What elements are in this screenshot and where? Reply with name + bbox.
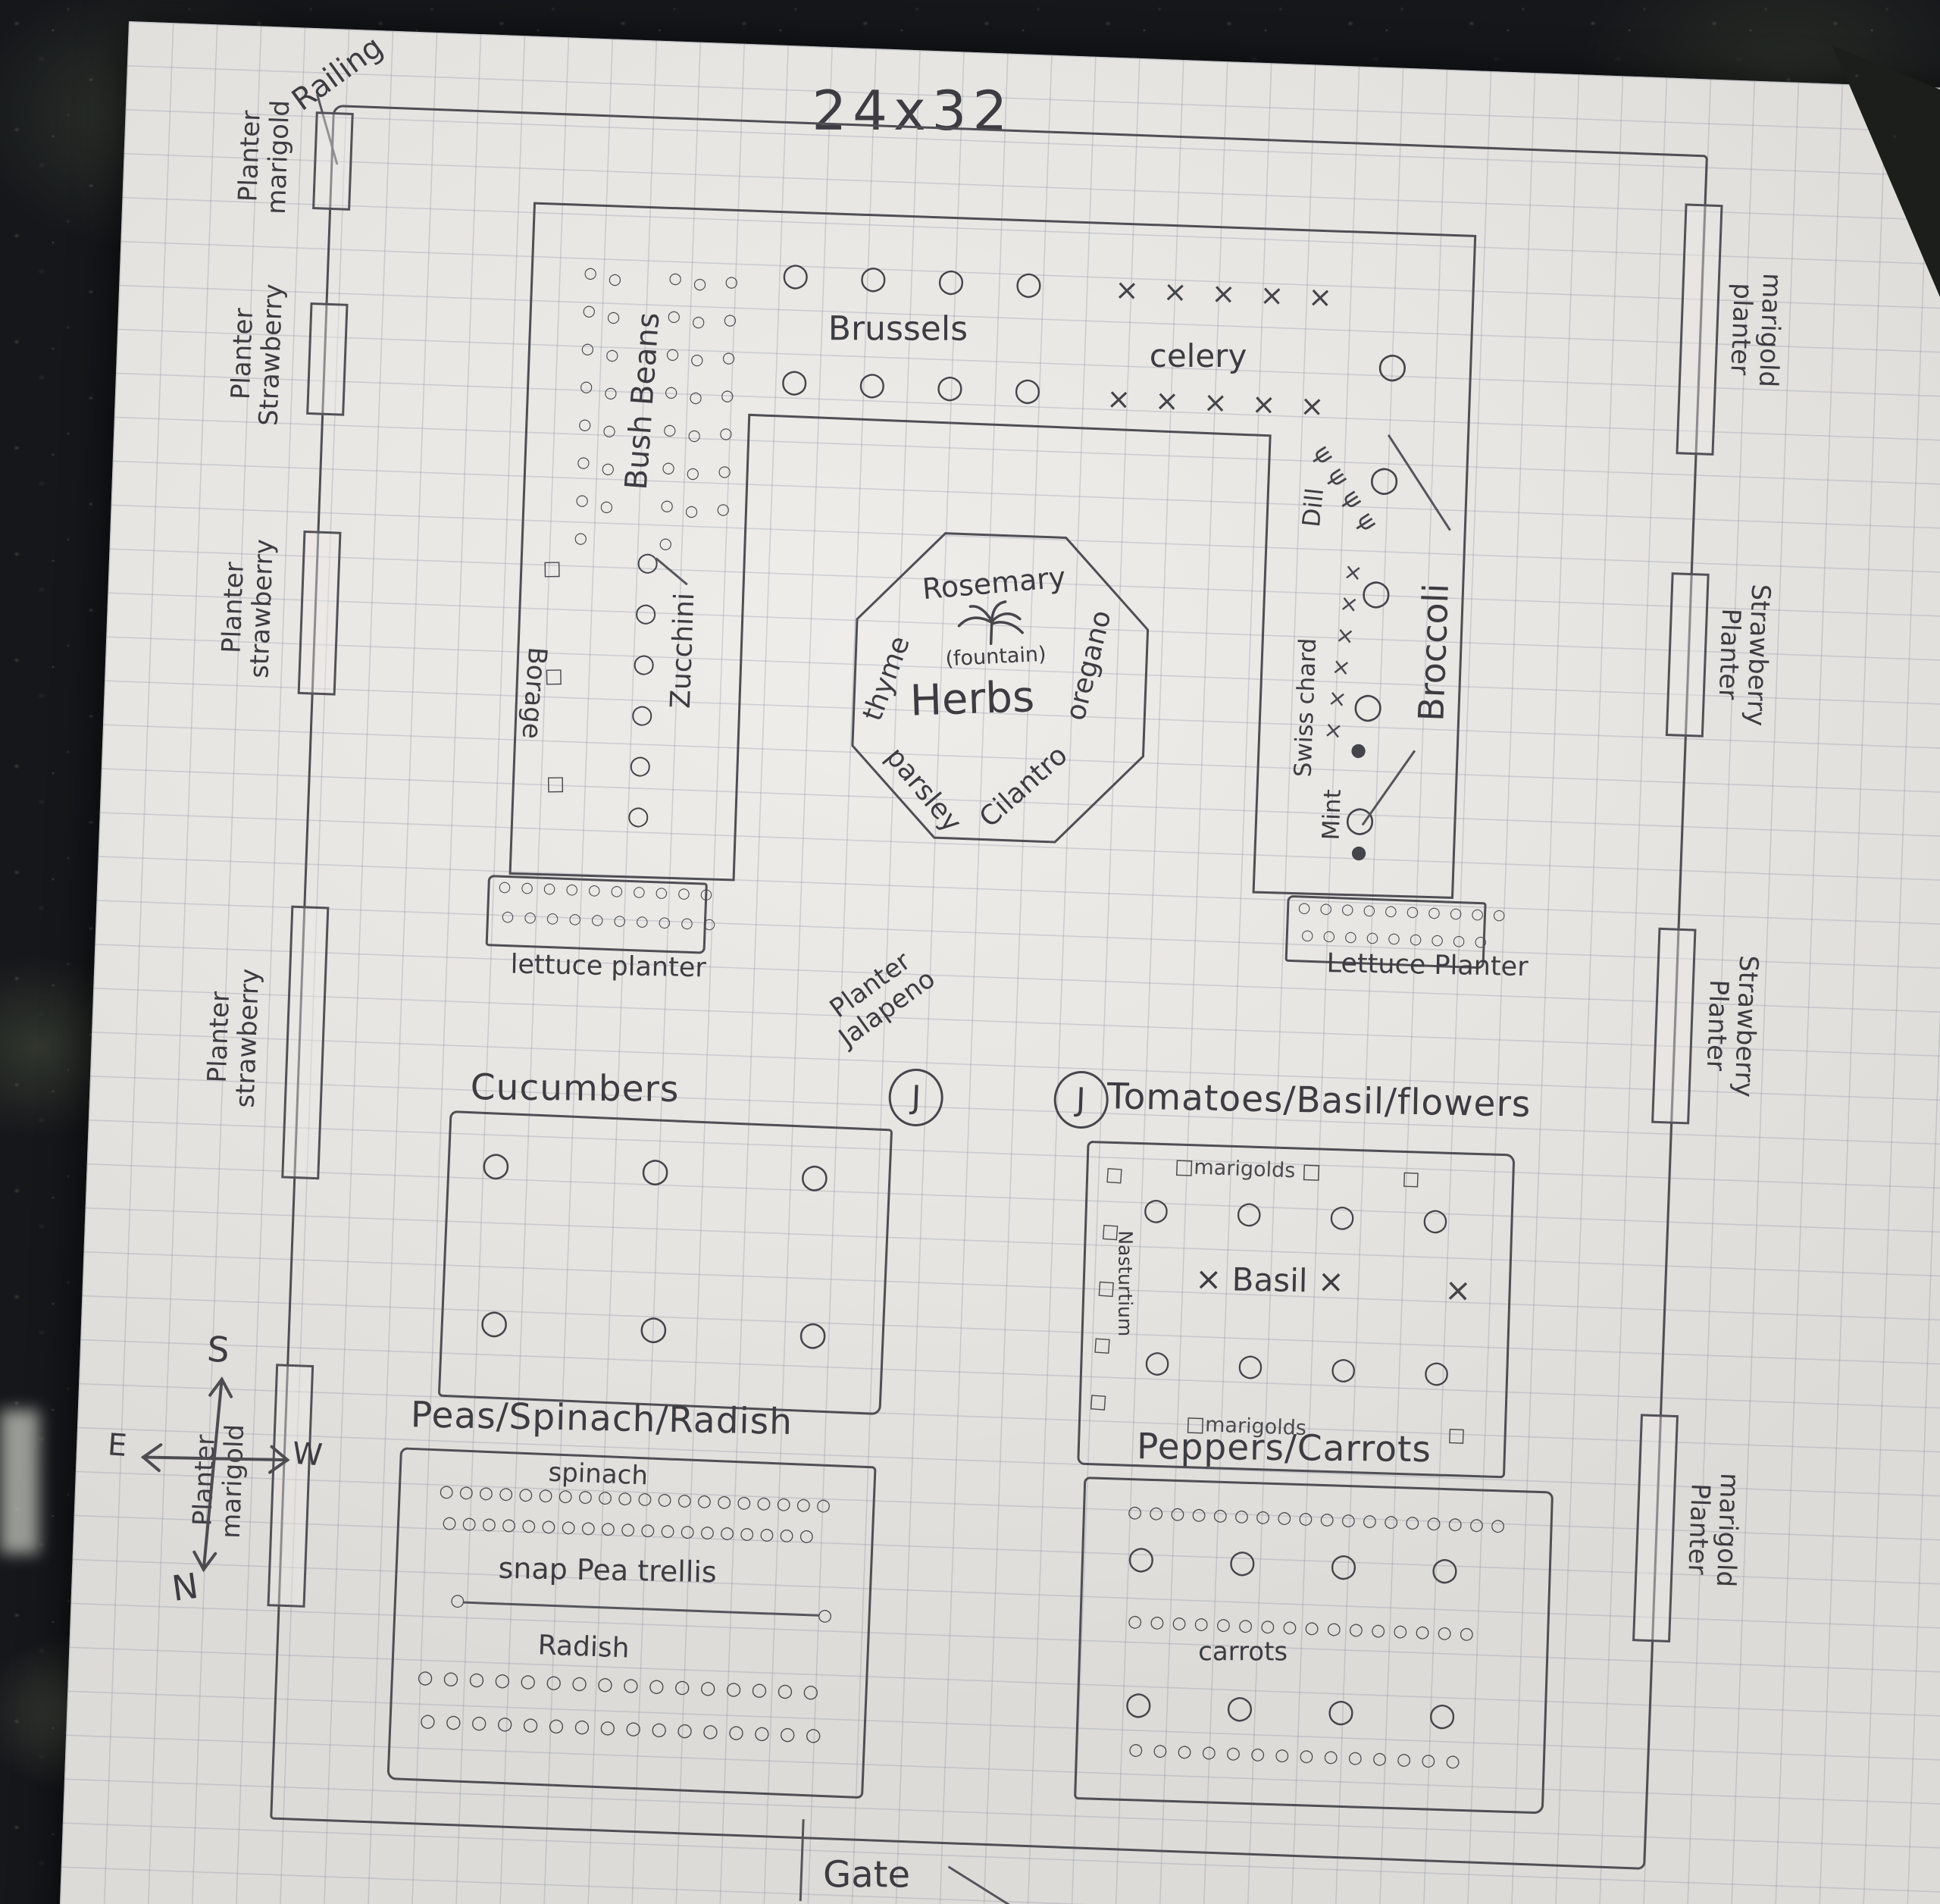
- swiss-chard-label: Swiss chard: [1289, 637, 1322, 778]
- garden-plot: ○○○○○○○○ ○○○○○○○ Bush Beans ○○○○○○○○ ○○○…: [270, 105, 1708, 1869]
- peppers-bed-label: Peppers/Carrots: [1137, 1426, 1432, 1471]
- strawberry-planter-box: [1666, 572, 1710, 737]
- countertop-photo: Railing 24x32 ○○○○○○○○ ○○○○○○○ Bush Bean…: [0, 0, 1940, 1904]
- strawberry-planter-box: [1651, 928, 1696, 1125]
- compass-arrows: [116, 1329, 317, 1614]
- graph-paper: Railing 24x32 ○○○○○○○○ ○○○○○○○ Bush Bean…: [55, 21, 1940, 1904]
- tomatoes-square-bottom-right: □: [1447, 1423, 1466, 1446]
- snap-pea-trellis-label: snap Pea trellis: [498, 1552, 717, 1589]
- carrots-label: carrots: [1198, 1636, 1288, 1667]
- compass-north: N: [169, 1565, 201, 1609]
- countertop-scratch: [0, 1410, 39, 1554]
- compass-south: S: [206, 1328, 231, 1370]
- railing-label: Railing: [286, 30, 390, 118]
- brussels-label: Brussels: [828, 309, 967, 348]
- jalapeno-initial: J: [911, 1079, 921, 1116]
- peas-bed-label: Peas/Spinach/Radish: [410, 1394, 793, 1443]
- gate-path-line: [948, 1865, 1046, 1904]
- marigold-planter-box: [1676, 203, 1723, 456]
- lettuce-planter-label-left: lettuce planter: [511, 949, 707, 983]
- herbs-label: Herbs: [909, 672, 1035, 725]
- radish-label: Radish: [537, 1630, 630, 1664]
- basil-extra-x: ×: [1444, 1271, 1472, 1309]
- dill-label: Dill: [1297, 487, 1329, 528]
- tomatoes-square-top-right: □: [1402, 1167, 1421, 1189]
- tomatoes-label: Tomatoes/Basil/flowers: [1107, 1076, 1532, 1126]
- gate-label: Gate: [823, 1853, 910, 1896]
- spinach-label: spinach: [548, 1458, 649, 1492]
- tomatoes-j-initial: J: [1075, 1081, 1086, 1118]
- compass-rose: S E W N: [116, 1329, 317, 1614]
- compass-west: W: [291, 1436, 324, 1473]
- basil-row-label: × Basil ×: [1195, 1260, 1345, 1300]
- trellis-end-circle: ○: [818, 1605, 833, 1625]
- celery-label: celery: [1150, 337, 1247, 374]
- broccoli-label: Broccoli: [1411, 583, 1457, 722]
- nasturtium-label: Nasturtium: [1114, 1230, 1136, 1336]
- planter-label-right: marigold Planter: [1682, 1471, 1744, 1587]
- planter-label-right: Strawberry Planter: [1700, 954, 1763, 1098]
- planter-label-right: marigold planter: [1725, 271, 1787, 387]
- planter-label-left: Planter strawberry: [202, 967, 265, 1108]
- strawberry-planter-box: [298, 531, 342, 696]
- cucumbers-label: Cucumbers: [471, 1066, 680, 1110]
- marigold-planter-box: [312, 111, 354, 211]
- lettuce-planter-label-right: Lettuce Planter: [1326, 948, 1529, 982]
- zucchini-label: Zucchini: [665, 592, 701, 709]
- marigold-planter-box: [1632, 1414, 1679, 1643]
- planter-label-right: Strawberry Planter: [1712, 583, 1775, 727]
- trellis-end-circle: ○: [450, 1590, 465, 1610]
- strawberry-planter-box: [306, 302, 348, 416]
- planter-label-left: Planter marigold: [233, 99, 296, 215]
- compass-east: E: [106, 1427, 128, 1464]
- planter-label-left: Planter strawberry: [216, 537, 279, 678]
- planter-label-left: Planter Strawberry: [226, 282, 289, 426]
